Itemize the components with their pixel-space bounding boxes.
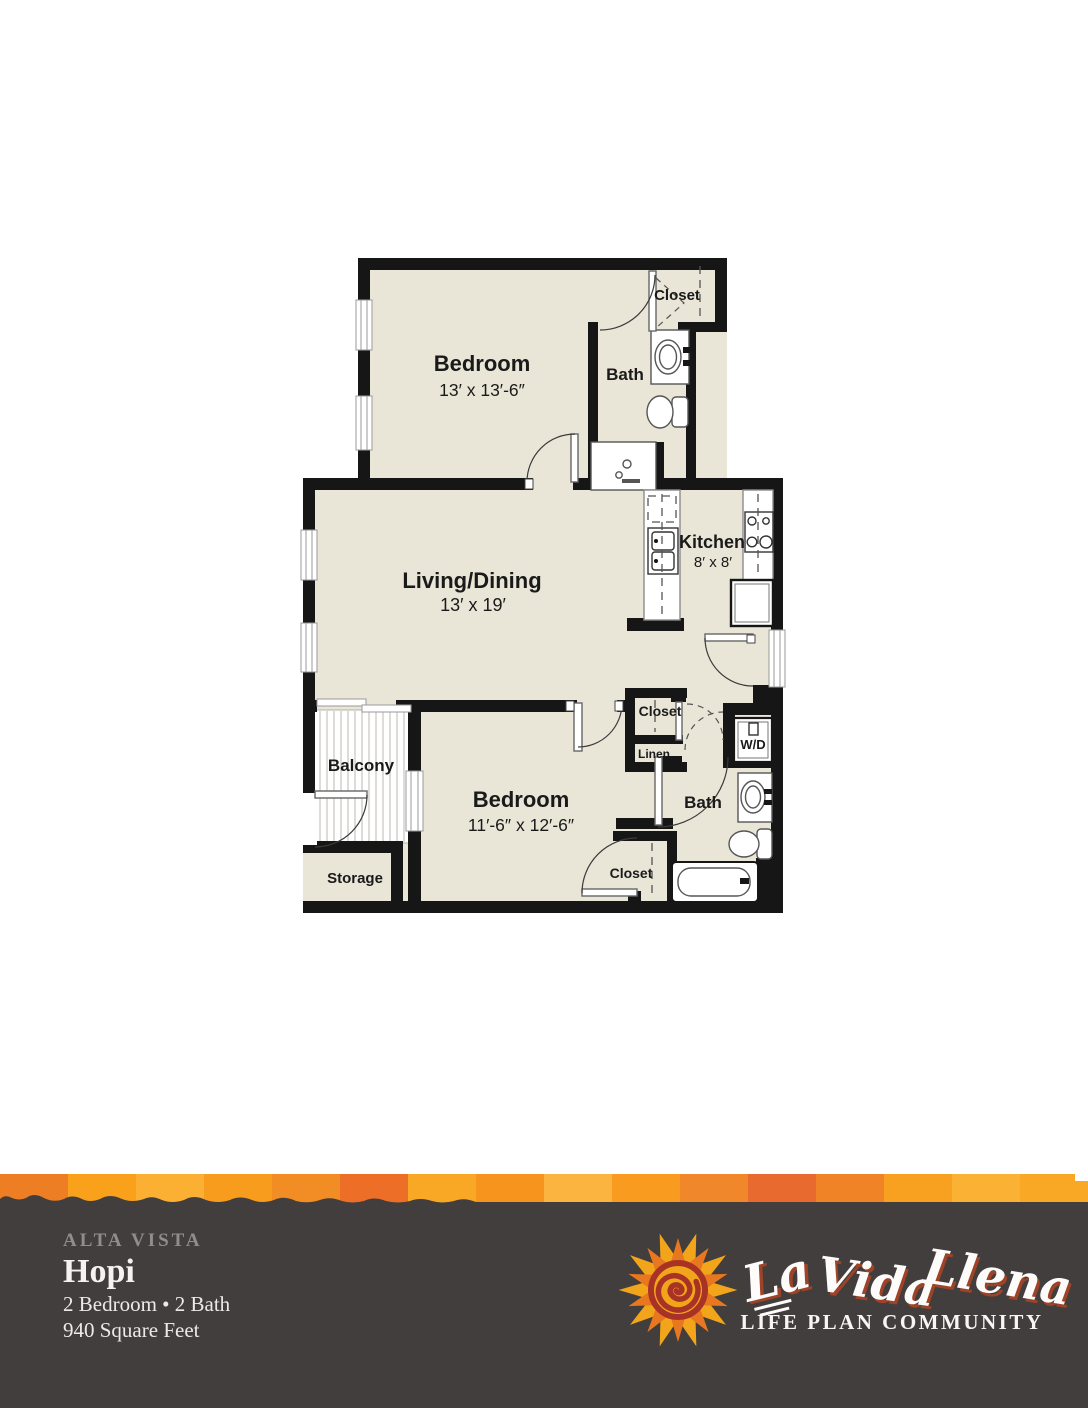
label-closet1: Closet [654,287,700,304]
footer-text-block: ALTA VISTA Hopi 2 Bedroom • 2 Bath 940 S… [63,1229,230,1343]
logo-tagline: LIFE PLAN COMMUNITY [741,1310,1044,1334]
window-living-a [301,530,317,580]
sun-spiral-icon [606,1216,750,1364]
label-kitchen: Kitchen [679,532,745,552]
balcony-door-opening [301,793,317,845]
community-name: ALTA VISTA [63,1229,230,1253]
door-leaf-balcony [315,791,367,798]
door-leaf-bedroom2 [574,703,582,751]
window-entry-sidelight [769,630,785,687]
door-leaf-bedroom1 [571,434,578,482]
window-bedroom2-balcony [406,771,423,831]
label-closet3: Closet [610,865,653,881]
label-storage: Storage [327,870,383,887]
window-bedroom1-a [356,300,372,350]
torn-edge [0,1192,1088,1205]
shower [591,442,656,490]
refrigerator [731,580,773,626]
door-leaf-bath2 [655,757,662,825]
label-washer-dryer: W/D [740,737,765,752]
dims-bedroom1: 13′ x 13′-6″ [439,380,525,400]
la-vida-llena-logo: La Vida Llena La Vida Llena LIFE PLAN CO… [600,1210,1075,1375]
dims-living: 13′ x 19′ [440,595,506,615]
bathtub [672,862,758,902]
door-leaf-entry [705,634,753,641]
logo-word-llena: Llena [918,1238,1075,1317]
flyer-page: Bedroom 13′ x 13′-6″ Closet Bath Living/… [0,0,1088,1408]
plan-specs: 2 Bedroom • 2 Bath [63,1291,230,1317]
label-closet2: Closet [639,703,682,719]
label-bath1: Bath [606,365,644,384]
label-living: Living/Dining [402,568,541,593]
floorplan: Bedroom 13′ x 13′-6″ Closet Bath Living/… [0,0,1088,1174]
accent-bar-notch [1075,1174,1088,1181]
window-bedroom1-b [356,396,372,450]
plan-area: 940 Square Feet [63,1317,230,1343]
label-bath2: Bath [684,793,722,812]
logo-word-vida: Vida [813,1246,939,1318]
dims-kitchen: 8′ x 8′ [694,554,732,571]
label-bedroom1: Bedroom [434,351,531,376]
toilet-bath1 [647,396,688,428]
balcony-deck [313,710,409,843]
toilet-bath2 [729,829,772,859]
label-linen: Linen [638,747,670,761]
label-balcony: Balcony [328,756,395,775]
sink-bath2 [738,773,772,822]
plan-name: Hopi [63,1253,230,1291]
label-bedroom2: Bedroom [473,787,570,812]
window-living-b [301,623,317,672]
sink-bath1 [651,330,691,384]
dims-bedroom2: 11′-6″ x 12′-6″ [468,815,574,835]
door-leaf-closet3 [582,889,637,896]
